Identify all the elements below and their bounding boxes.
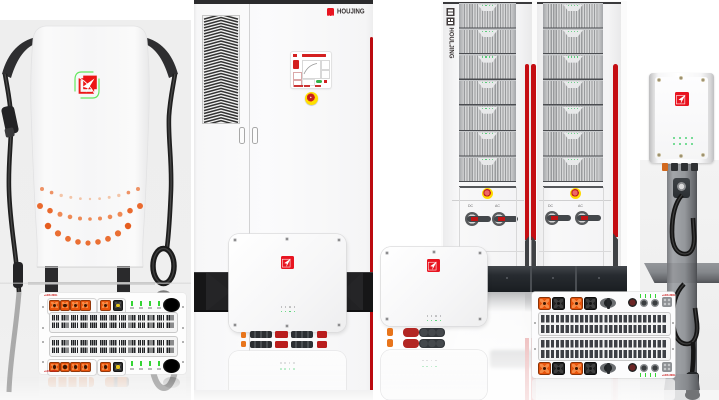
svg-text:HOULJING: HOULJING [448, 28, 454, 59]
